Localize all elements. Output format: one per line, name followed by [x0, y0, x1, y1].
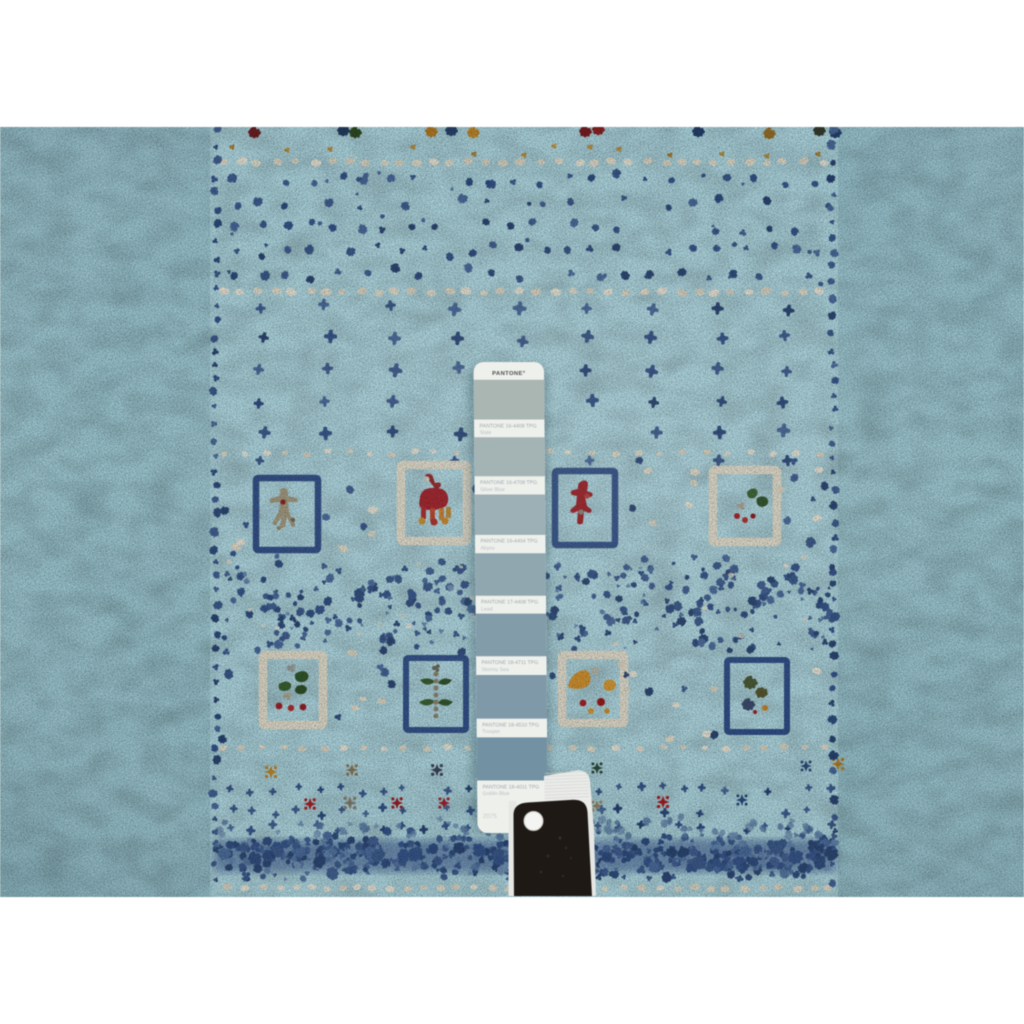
- svg-text:2075: 2075: [483, 813, 497, 820]
- svg-text:PANTONE 18-4510 TPG: PANTONE 18-4510 TPG: [482, 722, 539, 728]
- svg-text:PANTONE 18-4711 TPG: PANTONE 18-4711 TPG: [482, 660, 539, 666]
- svg-text:Stormy Sea: Stormy Sea: [482, 667, 509, 673]
- svg-text:Trooper: Trooper: [482, 729, 500, 735]
- svg-text:PANTONE 16-4708 TPG: PANTONE 16-4708 TPG: [480, 480, 537, 486]
- svg-text:PANTONE 16-4404 TPG: PANTONE 16-4404 TPG: [480, 539, 537, 545]
- svg-text:PANTONE®: PANTONE®: [492, 370, 526, 377]
- svg-text:Abyss: Abyss: [481, 546, 496, 552]
- svg-text:Goblin Blue: Goblin Blue: [483, 791, 510, 797]
- svg-text:Lead: Lead: [481, 606, 493, 612]
- svg-text:Silver Blue: Silver Blue: [480, 487, 505, 493]
- svg-text:PANTONE 17-4408 TPG: PANTONE 17-4408 TPG: [481, 600, 538, 606]
- svg-text:Slate: Slate: [480, 430, 492, 436]
- svg-text:PANTONE 16-4408 TPG: PANTONE 16-4408 TPG: [480, 423, 537, 429]
- svg-text:PANTONE 18-4011 TPG: PANTONE 18-4011 TPG: [483, 784, 540, 790]
